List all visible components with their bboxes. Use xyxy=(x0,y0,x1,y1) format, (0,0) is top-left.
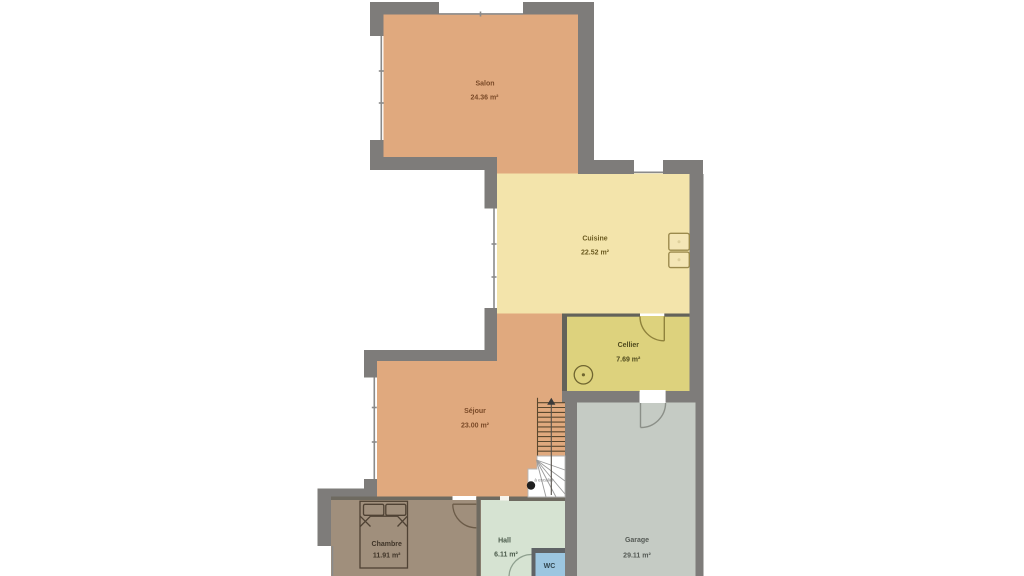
svg-text:11.91 m²: 11.91 m² xyxy=(373,553,401,560)
svg-text:6.11 m²: 6.11 m² xyxy=(494,552,518,559)
svg-text:WC: WC xyxy=(544,563,556,570)
svg-text:Chambre: Chambre xyxy=(372,541,402,548)
svg-text:22.52 m²: 22.52 m² xyxy=(581,250,610,257)
svg-text:Salon: Salon xyxy=(475,81,494,88)
svg-text:Séjour: Séjour xyxy=(464,408,486,415)
svg-text:24.36 m²: 24.36 m² xyxy=(470,95,499,102)
svg-text:23.00 m²: 23.00 m² xyxy=(461,423,490,430)
svg-text:7.69 m²: 7.69 m² xyxy=(616,357,641,364)
svg-text:à escalier: à escalier xyxy=(534,478,554,483)
svg-text:Garage: Garage xyxy=(625,537,649,544)
svg-text:Cuisine: Cuisine xyxy=(582,236,607,243)
svg-text:29.11 m²: 29.11 m² xyxy=(623,553,651,560)
svg-text:Hall: Hall xyxy=(498,538,511,545)
svg-text:Cellier: Cellier xyxy=(618,342,640,349)
